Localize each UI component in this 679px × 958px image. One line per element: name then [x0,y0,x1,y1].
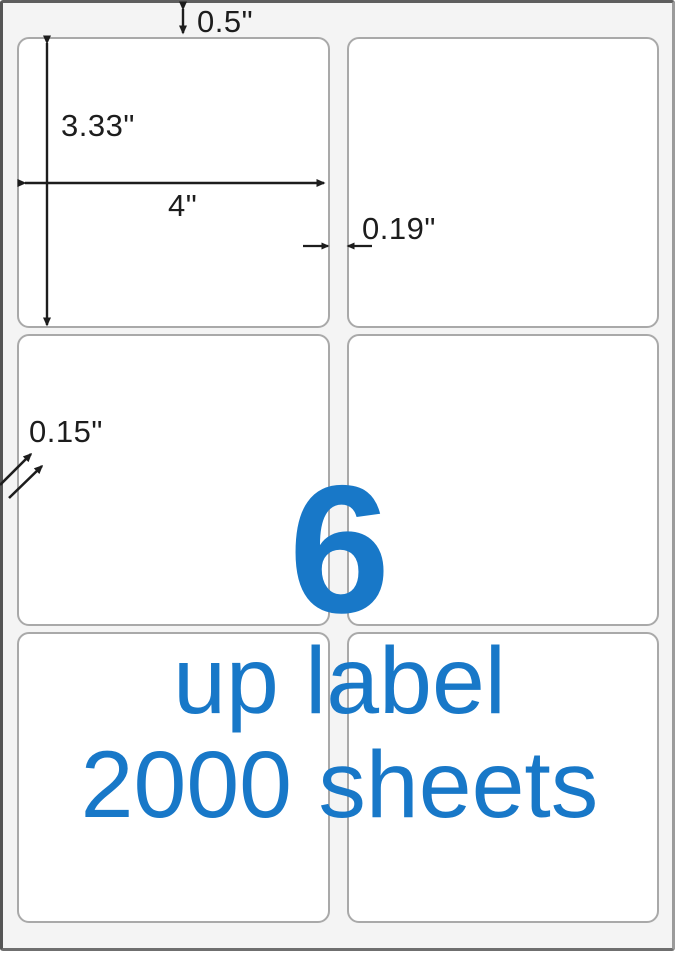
top-margin-dimension: 0.5" [197,6,253,37]
label-width-dimension: 4" [168,190,197,221]
label-cell [17,37,330,328]
product-image: 0.5" 3.33" 4" 0.19" 0.15" 6 up label 200… [0,0,679,958]
label-cell [347,37,660,328]
product-title-line2: 2000 sheets [0,738,679,833]
label-count: 6 [0,458,679,640]
product-title-line1: up label [0,634,679,729]
label-height-dimension: 3.33" [61,110,135,141]
column-gap-dimension: 0.19" [362,213,436,244]
corner-radius-dimension: 0.15" [29,416,103,447]
